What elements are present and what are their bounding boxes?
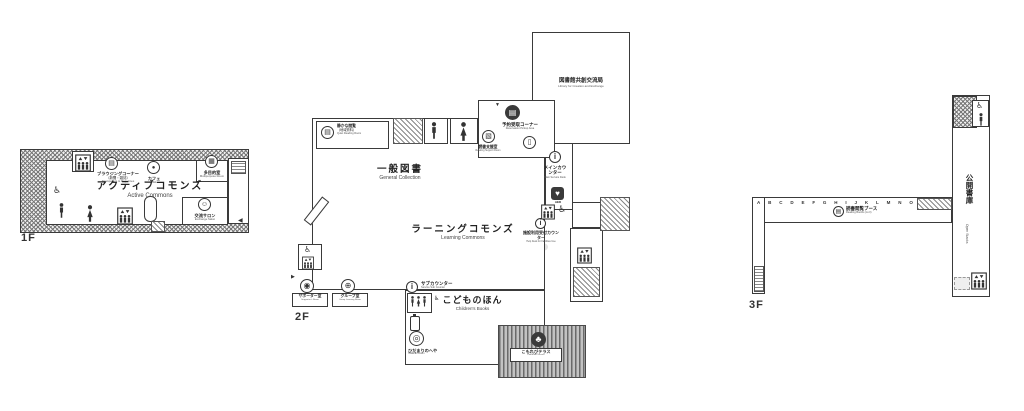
exchange-salon-icon: ☺ <box>198 198 211 211</box>
elevator-icon <box>577 247 592 264</box>
elevator-icon <box>117 207 133 225</box>
gate-glyph: ▯ <box>528 139 532 146</box>
heart-icon: ♥ <box>555 190 560 198</box>
booth-label: I <box>845 200 846 207</box>
quiet-reading-icon: ▤ <box>321 126 334 139</box>
group-room-icon: ⊕ <box>341 279 355 293</box>
tree-icon: ♣ <box>531 332 546 347</box>
booth-label: E <box>801 200 804 207</box>
booth-label: D <box>790 200 793 207</box>
bureau-label: 図書館共創交流局 Library for Creation and Exchan… <box>537 78 625 88</box>
stairs <box>151 221 165 232</box>
wheelchair-icon: ♿ <box>558 205 566 214</box>
supporter-room-label: サポーター室 Supporter's Room <box>292 294 328 301</box>
exchange-salon-label: 交流サロン Exchange Salon <box>184 213 226 221</box>
stairs <box>231 161 246 174</box>
booth-label: G <box>823 200 827 207</box>
entrance-arrow-icon: ◀ <box>238 218 243 224</box>
book-icon: ▤ <box>324 129 331 136</box>
open-stacks-label-box: 公開書庫 <box>961 157 978 221</box>
terrace-label: こもれびテラス Komorebi Terrace <box>510 349 562 357</box>
stairs <box>573 267 600 297</box>
mens-toilet-icon <box>422 296 427 307</box>
open-stacks-label: 公開書庫 <box>964 174 975 204</box>
wheelchair-icon: ♿ <box>53 186 61 195</box>
booth-label: F <box>812 200 815 207</box>
stairs <box>393 118 423 144</box>
reservation-pickup-icon: ▤ <box>505 105 520 120</box>
info-glyph: i <box>540 220 542 227</box>
book-icon: ▤ <box>108 160 115 167</box>
floor-label-2f: 2F <box>295 311 310 323</box>
info-icon: i <box>406 281 418 293</box>
group-room-label: グループ室 Group Learning Room <box>332 294 368 301</box>
stairs <box>754 266 764 292</box>
info-glyph: i <box>411 283 413 291</box>
book-icon: ▤ <box>509 109 517 117</box>
quiet-reading-label: 静かな閲覧 （地域資料） Quiet Reading Room <box>337 124 389 136</box>
info-icon: i <box>549 151 561 163</box>
reading-booth-icon: ▤ <box>833 206 844 217</box>
aed-icon: ♥ <box>551 187 564 200</box>
multipurpose-room-icon: ▦ <box>205 155 218 168</box>
cafe-icon: ● <box>147 161 160 174</box>
main-counter-label: メインカウンター Main Service Desk <box>542 165 568 179</box>
reading-support-label: 読書支援室 Reading Support Room <box>462 145 514 152</box>
hidamari-label: ひだまりのへや Hidamari Room <box>408 348 462 356</box>
booth-label: B <box>768 200 771 207</box>
library-floor-map: ◀ ▤ ブラウジングコーナー （新聞・雑誌） Newspapers & Maga… <box>0 0 1024 411</box>
f3-locker <box>954 277 970 290</box>
disc-icon: ◉ <box>304 282 311 290</box>
entrance-arrow-icon: ▶ <box>291 275 295 280</box>
booth-label: O <box>909 200 913 207</box>
info-glyph: i <box>554 153 556 161</box>
smile-icon: ☺ <box>201 201 208 208</box>
booth-label: K <box>865 200 868 207</box>
elevator-icon <box>971 272 987 290</box>
learning-commons-label: ラーニングコモンズ Learning Commons <box>408 224 518 241</box>
group-icon: ⊕ <box>345 282 352 290</box>
wheelchair-icon: ♿ <box>304 246 311 254</box>
grid-icon: ▦ <box>208 158 215 165</box>
booth-label: A <box>757 200 760 207</box>
booth-label: N <box>898 200 901 207</box>
browsing-corner-icon: ▤ <box>105 157 118 170</box>
reading-booths-label: 読書閲覧ブース Reading Booths (A-O) <box>846 206 900 215</box>
wheelchair-icon: ♿ <box>976 102 983 110</box>
active-commons-label: アクティブコモンズ Active Commons <box>95 181 205 200</box>
booth-label: L <box>876 200 879 207</box>
reservation-pickup-label: 予約受取コーナー Reservation Pickup Area <box>487 122 553 131</box>
womens-toilet-icon <box>459 122 468 142</box>
stairs <box>600 197 630 231</box>
cup-icon: ● <box>152 165 156 171</box>
mens-toilet-icon <box>58 203 65 218</box>
mens-toilet-icon <box>430 122 438 140</box>
mens-toilet-icon <box>410 296 415 307</box>
elevator-icon <box>541 204 555 220</box>
wheelchair-icon: ♿ <box>434 296 439 302</box>
booth-label: J <box>855 200 858 207</box>
facility-counter-label: 施設利用受付カウンター Help Desk for Facilities Use <box>523 231 559 243</box>
tree-glyph: ♣ <box>536 335 542 344</box>
general-collection-label: 一般図書 General Collection <box>362 164 438 181</box>
elevator-icon <box>302 256 314 270</box>
booth-label: M <box>887 200 891 207</box>
story-room-icon: ◎ <box>409 331 424 346</box>
elevator-icon <box>75 154 91 172</box>
multipurpose-room-label: 多目的室 Multipurpose Room <box>196 170 228 178</box>
open-stacks-label-en: Open Stacks <box>965 224 976 274</box>
open-stacks-en-text: Open Stacks <box>965 224 969 243</box>
supporter-room-icon: ◉ <box>300 279 314 293</box>
entrance-arrow-icon: ▼ <box>495 103 500 108</box>
hatch-square-icon: ▧ <box>485 133 492 140</box>
floor-label-1f: 1F <box>21 232 36 244</box>
book-icon: ▤ <box>836 209 842 215</box>
floor-label-3f: 3F <box>749 299 764 311</box>
nursing-room-icon <box>410 316 420 331</box>
booth-label: C <box>779 200 782 207</box>
children-books-label: こどものほん Children's Books <box>430 295 515 311</box>
womens-toilet-icon <box>86 205 94 223</box>
womens-toilet-icon <box>416 296 421 307</box>
sub-counter-label: サブカウンター Service Sub Counter <box>421 281 467 290</box>
mens-toilet-icon <box>978 113 984 126</box>
gate-icon: ▯ <box>523 136 536 149</box>
reading-support-icon: ▧ <box>482 130 495 143</box>
target-icon: ◎ <box>413 334 421 343</box>
stairs <box>917 198 952 210</box>
